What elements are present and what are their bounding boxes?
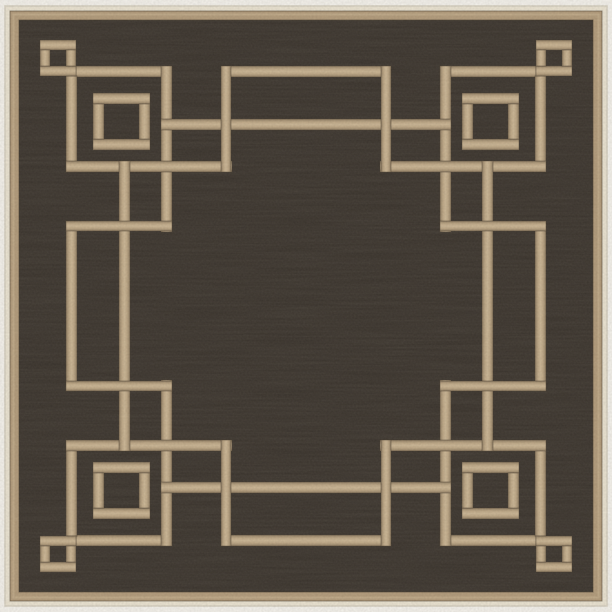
grain-dark-texture	[5, 6, 607, 606]
product-photo	[0, 0, 612, 612]
rug-graphic	[0, 0, 612, 612]
rug-render-root	[0, 0, 612, 612]
